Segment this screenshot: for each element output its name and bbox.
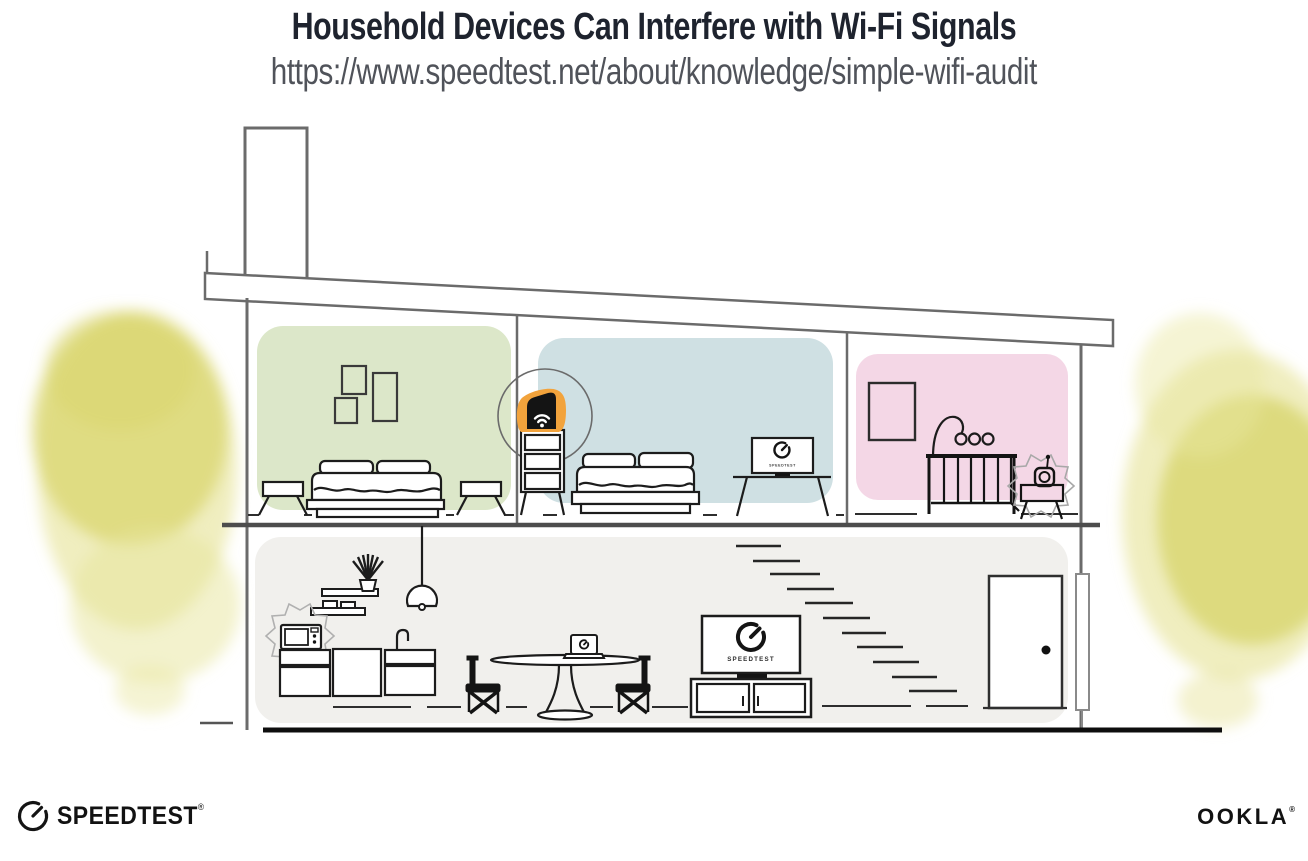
microwave bbox=[281, 625, 321, 649]
front-door bbox=[983, 576, 1067, 708]
speedtest-gauge-icon bbox=[16, 799, 50, 833]
living-room-tv-label: SPEEDTEST bbox=[727, 656, 775, 663]
wifi-router bbox=[517, 389, 566, 432]
ookla-wordmark: OOKLA bbox=[1197, 804, 1289, 829]
chimney bbox=[245, 128, 307, 280]
downspout bbox=[1076, 574, 1089, 729]
speedtest-wordmark: SPEEDTEST® bbox=[57, 802, 204, 831]
ookla-trademark: ® bbox=[1289, 805, 1295, 814]
ookla-logo: OOKLA® bbox=[1197, 804, 1295, 830]
speedtest-logo: SPEEDTEST® bbox=[16, 799, 217, 833]
bedroom-tv-label: SPEEDTEST bbox=[769, 464, 796, 468]
infographic-canvas: Household Devices Can Interfere with Wi-… bbox=[0, 0, 1308, 861]
door-knob bbox=[1042, 646, 1051, 655]
dresser bbox=[521, 430, 564, 515]
tree-right bbox=[1122, 313, 1308, 728]
house-cutaway-illustration: SPEEDTEST bbox=[0, 0, 1308, 861]
living-room-tv: SPEEDTEST bbox=[702, 616, 800, 678]
bed-blue bbox=[572, 453, 699, 513]
kitchen-cabinets bbox=[280, 649, 435, 696]
tv-cabinet bbox=[691, 679, 811, 717]
tree-left bbox=[32, 310, 240, 715]
speedtest-trademark: ® bbox=[198, 802, 205, 812]
laptop bbox=[564, 635, 604, 658]
